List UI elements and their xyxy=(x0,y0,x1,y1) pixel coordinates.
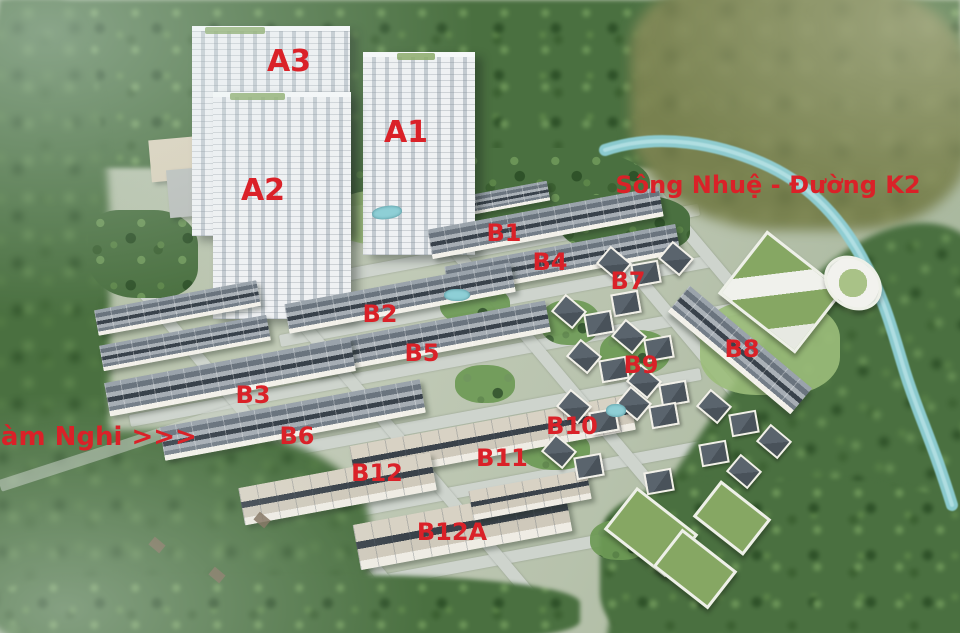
label-block-b5: B5 xyxy=(405,341,440,365)
label-river-road: Sông Nhuệ - Đường K2 xyxy=(615,173,920,197)
roof-garden xyxy=(205,27,265,34)
roof-garden xyxy=(397,53,435,60)
villa xyxy=(648,402,680,430)
villa xyxy=(643,468,675,496)
label-block-b10: B10 xyxy=(546,414,598,438)
roof-garden xyxy=(230,93,285,100)
label-block-b11: B11 xyxy=(476,446,528,470)
label-block-a1: A1 xyxy=(384,118,428,148)
villa-pond xyxy=(606,404,626,417)
label-block-b2: B2 xyxy=(363,302,398,326)
villa xyxy=(728,410,760,438)
label-block-b4: B4 xyxy=(533,250,568,274)
label-block-b12a: B12A xyxy=(417,520,487,544)
villa xyxy=(698,440,730,468)
label-block-b1: B1 xyxy=(487,221,522,245)
label-block-b8: B8 xyxy=(725,337,760,361)
label-block-a2: A2 xyxy=(241,176,285,206)
label-block-b7: B7 xyxy=(611,269,646,293)
label-block-a3: A3 xyxy=(267,47,311,77)
label-street-ham-nghi: Hàm Nghi >>> xyxy=(0,424,197,450)
label-block-b9: B9 xyxy=(624,353,659,377)
park-pool xyxy=(444,289,470,301)
label-block-b6: B6 xyxy=(280,424,315,448)
label-block-b3: B3 xyxy=(236,383,271,407)
masterplan-aerial-render: A3 A1 A2 Sông Nhuệ - Đường K2 B1 B4 B7 B… xyxy=(0,0,960,633)
label-block-b12: B12 xyxy=(351,461,403,485)
villa xyxy=(583,310,615,338)
villa xyxy=(573,453,605,481)
